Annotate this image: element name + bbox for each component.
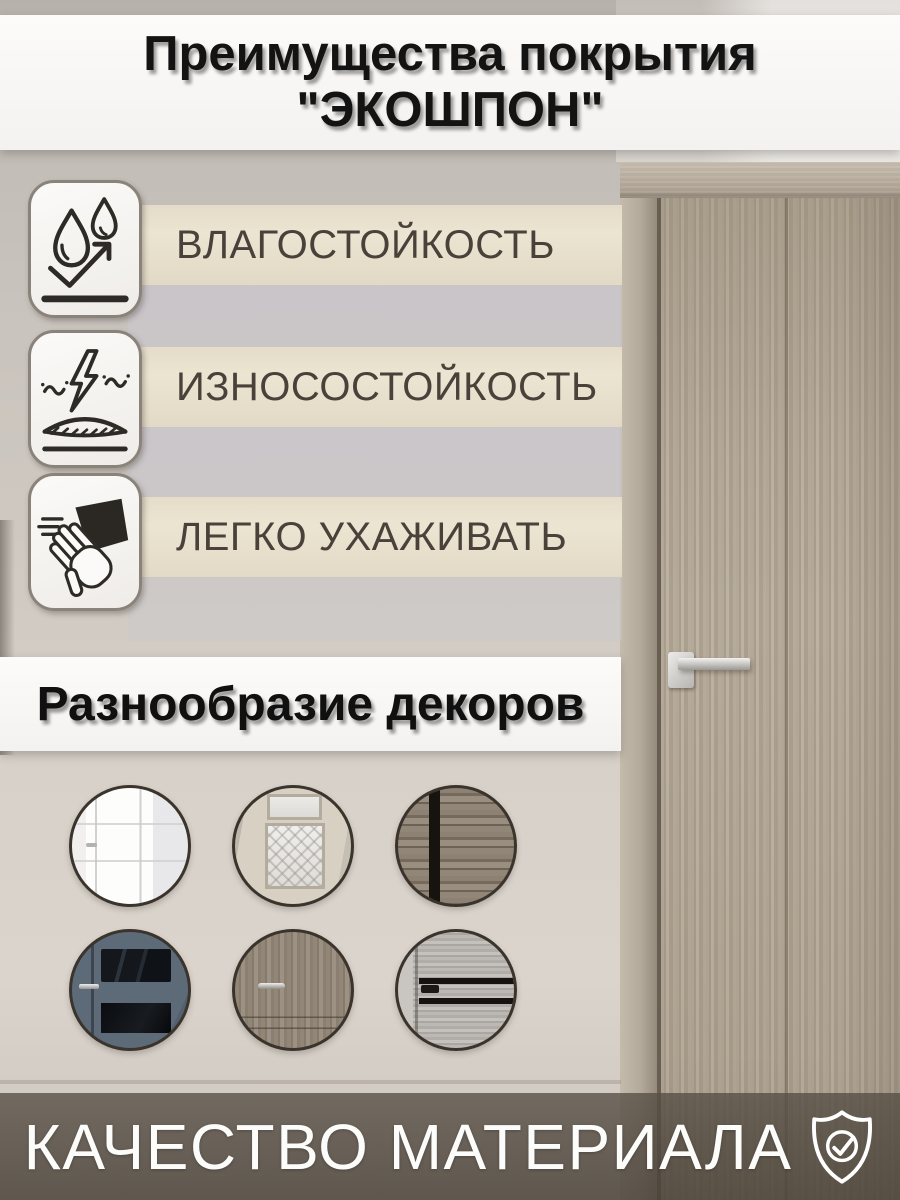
decor-door-handle [258,983,285,989]
decor-circle-white-classic [69,785,191,907]
decor-door-handle [86,843,97,847]
feature-label: ВЛАГОСТОЙКОСТЬ [176,223,555,268]
gray-stripe [128,577,622,641]
door-photo [616,0,900,1200]
door-frame-jamb [620,198,657,1200]
decor-glass-top [267,794,322,820]
decor-circle-gray-stripes [395,929,517,1051]
gray-stripe [128,427,622,497]
decors-banner: Разнообразие декоров [0,657,621,751]
feature-row: ВЛАГОСТОЙКОСТЬ [176,205,555,285]
feature-icon-box [28,180,142,318]
quality-band: КАЧЕСТВО МАТЕРИАЛА [0,1093,900,1200]
decor-grooves [235,1013,351,1048]
decor-door-edge [91,932,94,1048]
decor-glass-bottom [101,1003,171,1033]
wipe-clean-icon [37,482,133,602]
shield-check-icon [808,1108,876,1186]
water-drops-icon [37,189,133,309]
baseboard-shadow [0,1080,621,1084]
feature-label: ИЗНОСОСТОЙКОСТЬ [176,365,598,410]
page-title-line-2: "ЭКОШПОН" [296,83,603,138]
feature-icon-box [28,330,142,468]
decor-black-bar [429,788,439,904]
decor-door-handle [421,985,438,993]
title-banner: Преимущества покрытия "ЭКОШПОН" [0,15,900,150]
feature-row: ИЗНОСОСТОЙКОСТЬ [176,347,598,427]
decor-door-handle [79,984,99,989]
gray-stripe [128,285,622,347]
door-leaf [661,198,900,1200]
wear-resistance-icon [37,339,133,459]
decor-glass-panel [265,823,324,889]
decor-circle-rustic-plank [395,785,517,907]
page-title-line-1: Преимущества покрытия [143,27,756,82]
feature-label: ЛЕГКО УХАЖИВАТЬ [176,515,567,560]
door-frame-top [620,162,900,198]
decor-circle-glass-lattice [232,785,354,907]
decors-heading: Разнообразие декоров [37,677,585,732]
promo-infographic: Преимущества покрытия "ЭКОШПОН" ВЛАГОСТО… [0,0,900,1200]
feature-icon-box [28,473,142,611]
decor-glass-top [101,949,171,981]
door-handle-lever [678,658,750,670]
decor-door-edge [415,932,418,1048]
decor-black-stripe [419,998,514,1004]
decor-circle-slate-blue [69,929,191,1051]
feature-row: ЛЕГКО УХАЖИВАТЬ [176,497,567,577]
decor-black-stripe [419,978,514,984]
decor-circle-taupe-wood [232,929,354,1051]
quality-label: КАЧЕСТВО МАТЕРИАЛА [24,1110,793,1184]
